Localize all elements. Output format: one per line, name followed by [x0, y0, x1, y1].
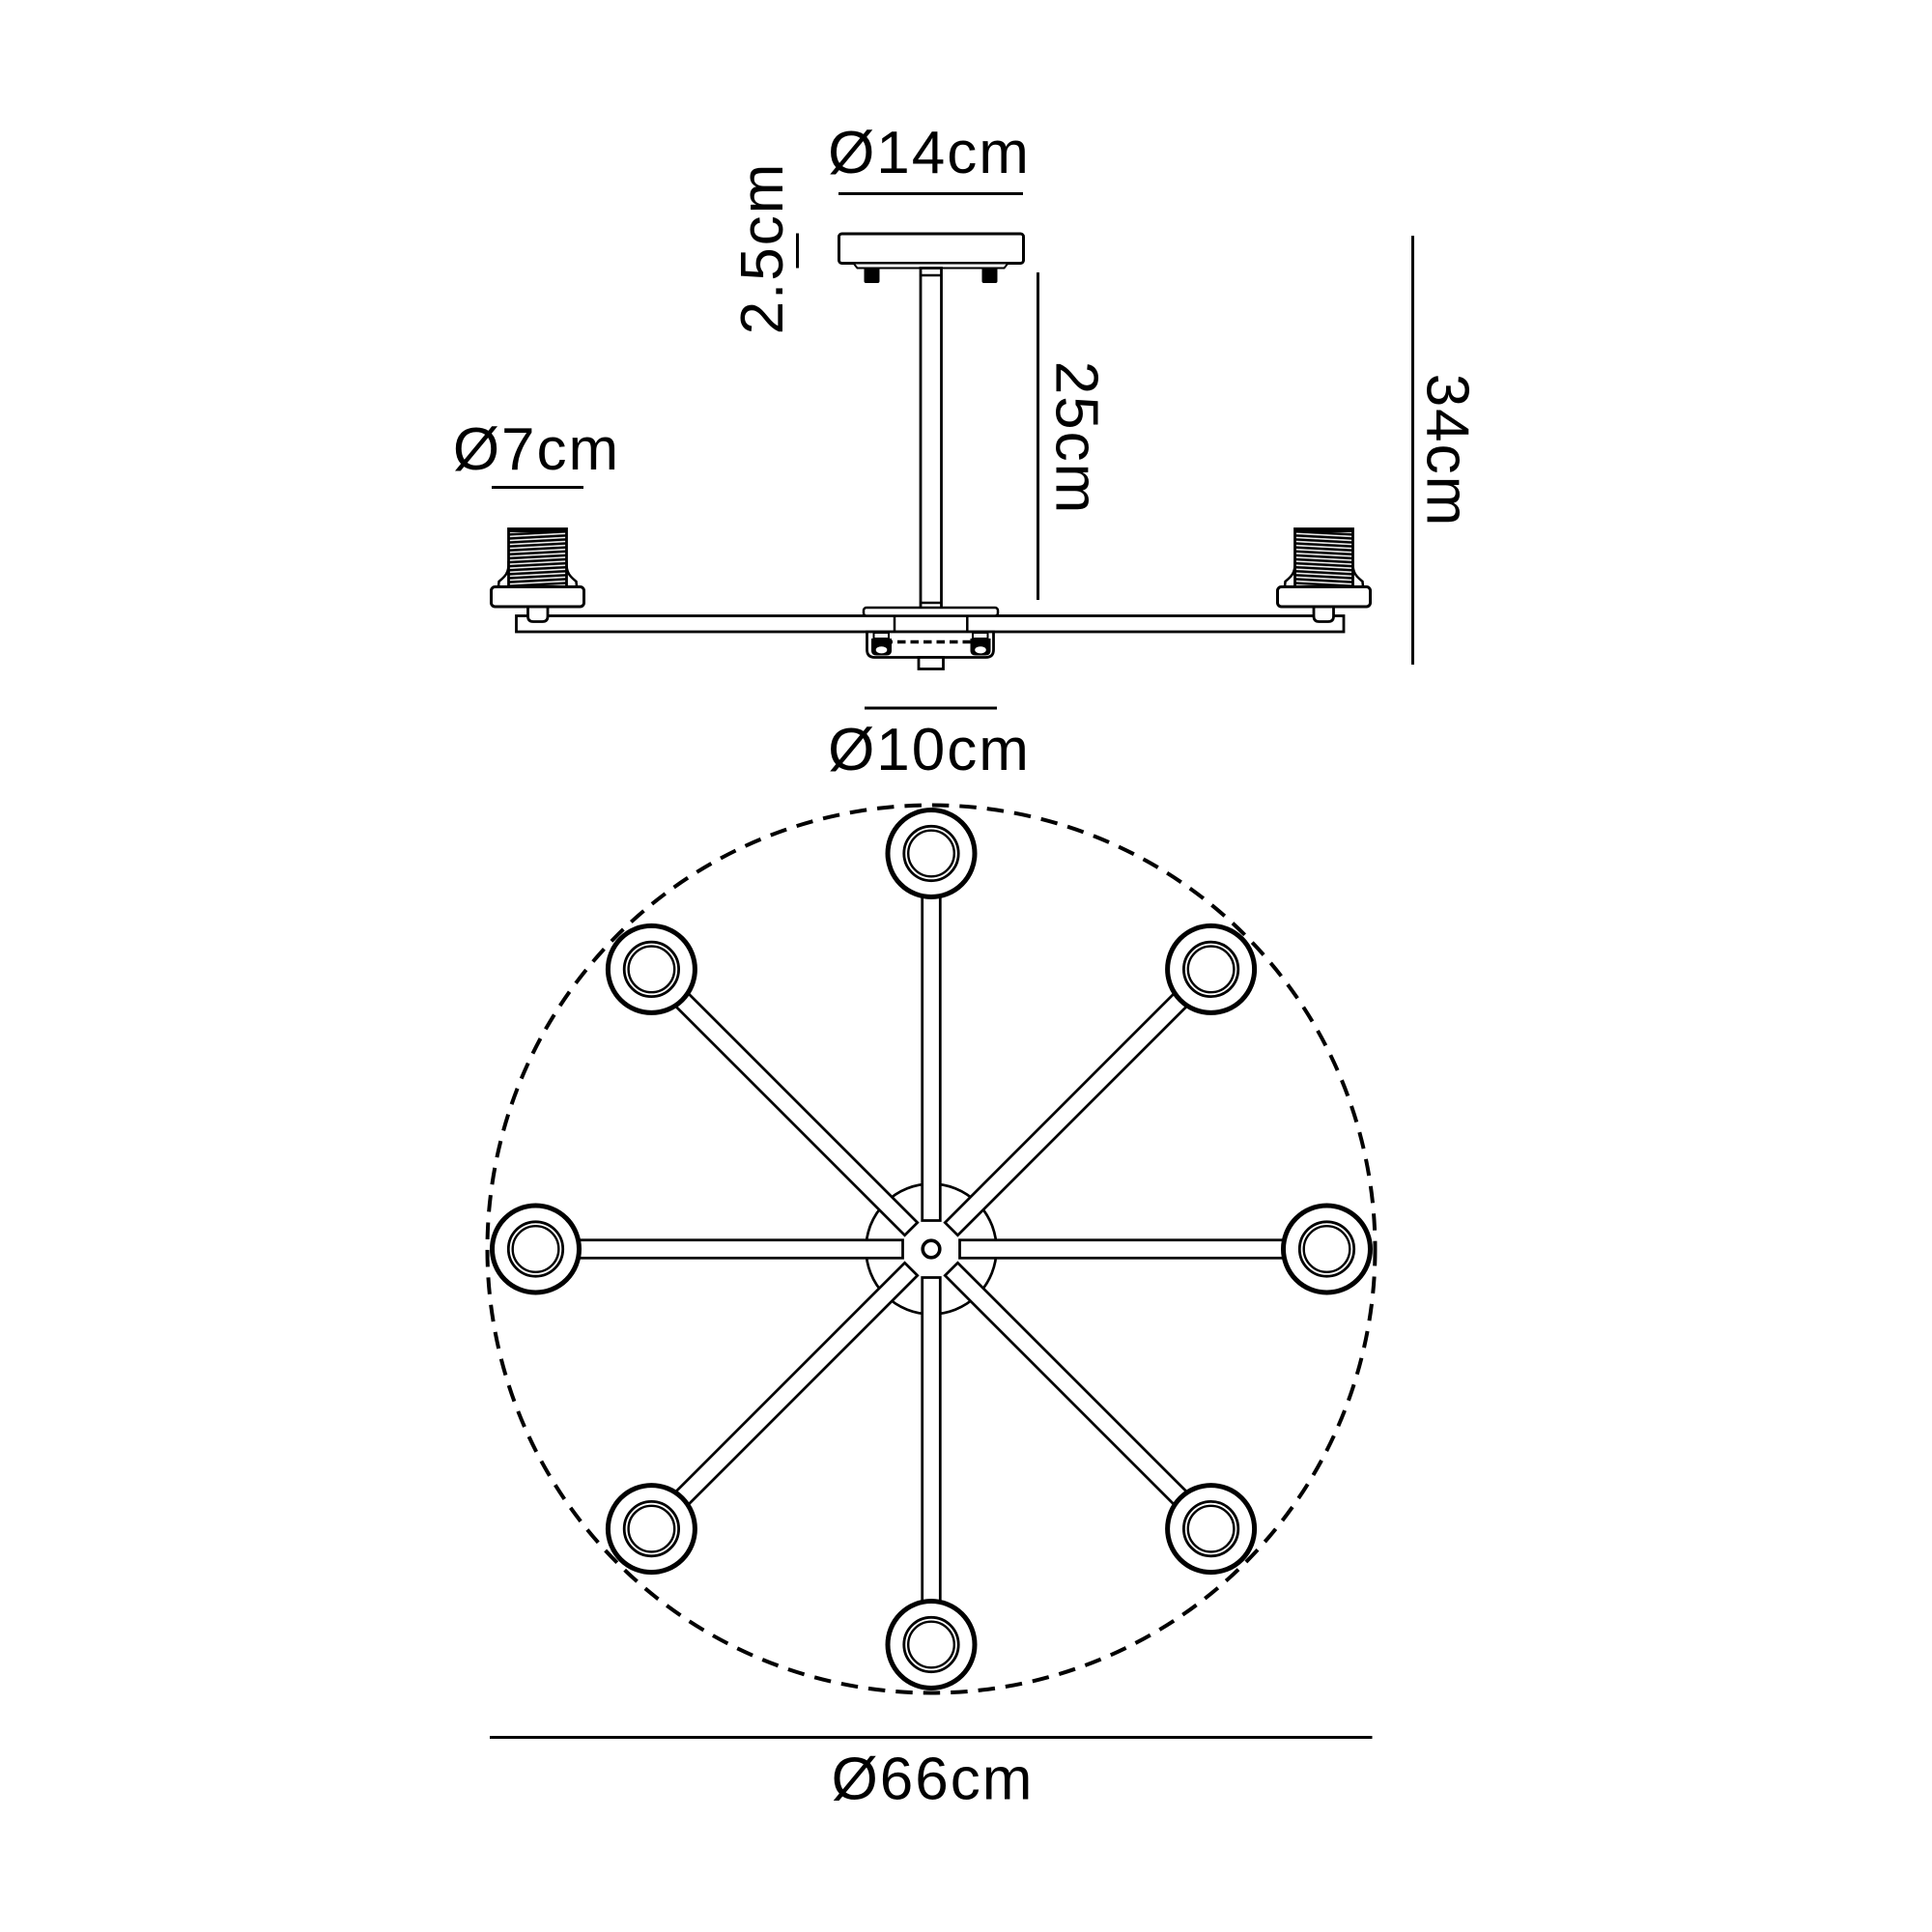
svg-text:Ø14cm: Ø14cm	[828, 120, 1031, 186]
svg-text:34cm: 34cm	[1414, 374, 1481, 528]
svg-text:25cm: 25cm	[1043, 361, 1110, 516]
svg-text:Ø7cm: Ø7cm	[453, 416, 620, 483]
svg-text:Ø66cm: Ø66cm	[832, 1747, 1035, 1813]
svg-text:Ø10cm: Ø10cm	[828, 717, 1031, 783]
svg-text:2.5cm: 2.5cm	[729, 162, 796, 335]
